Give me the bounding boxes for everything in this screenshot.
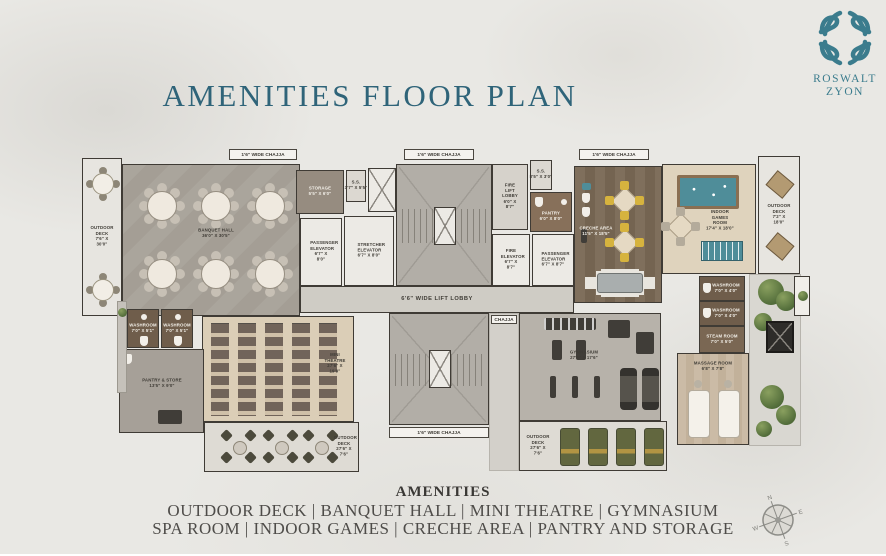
lounge-chair — [765, 232, 794, 261]
room-label: PASSENGER ELEVATOR6'7" X 8'0" — [310, 241, 332, 263]
corridor-label: 6'6" WIDE LIFT LOBBY — [401, 296, 473, 303]
room-label: BANQUET HALL36'0" X 30'5" — [198, 229, 234, 240]
store-unit — [158, 410, 182, 424]
room-label: WASHROOM7'0" X 4'0" — [713, 283, 741, 294]
theatre-seat-row — [211, 323, 229, 416]
room-washroom-left-2: WASHROOM7'0" X 5'1" — [161, 309, 193, 348]
room-label: STORAGE5'5" X 6'0" — [309, 187, 332, 198]
stair-core-elevator — [434, 207, 456, 245]
banquet-table — [147, 191, 177, 221]
room-steam: STEAM ROOM7'0" X 5'0" — [699, 326, 745, 353]
chajja-label-side: CHAJJA — [491, 315, 517, 324]
room-indoor-games: INDOOR GAMES ROOM17'4" X 18'0" — [662, 164, 756, 274]
deck-table — [92, 279, 114, 301]
chajja-label-top-right: 1'6" WIDE CHAJJA — [579, 149, 649, 160]
deck-chair — [286, 429, 299, 442]
stair-flight — [455, 209, 488, 243]
card-chair — [676, 237, 685, 246]
stair-flight — [395, 354, 429, 386]
room-label: OUTDOOR DECK27'6" X 7'6" — [334, 436, 354, 458]
kitchenette-unit — [582, 193, 590, 203]
sun-lounger — [588, 428, 608, 466]
kids-chair — [620, 223, 629, 232]
service-shaft — [766, 321, 794, 353]
brand-logo: ROSWALT ZYON — [812, 8, 878, 99]
deck-chair — [220, 429, 233, 442]
room-stretcher-elevator: STRETCHER ELEVATOR6'7" X 8'0" — [344, 216, 394, 286]
room-label: WASHROOM7'0" X 5'1" — [163, 323, 191, 334]
room-label: GYMNASIUM27'6" X 17'6" — [570, 351, 598, 362]
room-label: S.S.8'5" X 3'0" — [530, 170, 553, 181]
toilet — [174, 336, 182, 346]
dumbbell — [594, 376, 600, 398]
dining-table — [597, 273, 643, 293]
deck-table — [233, 441, 247, 455]
room-label: STEAM ROOM7'0" X 5'0" — [706, 334, 737, 345]
chajja-label-bottom: 1'6" WIDE CHAJJA — [389, 427, 489, 438]
room-outdoor-deck-right: OUTDOOR DECK7'2" X 18'0" — [758, 156, 800, 274]
room-label: PASSENGER ELEVATOR6'7" X 8'7" — [541, 252, 564, 268]
banquet-table — [201, 259, 231, 289]
room-washroom-right-1: WASHROOM7'0" X 4'0" — [699, 276, 745, 301]
deck-chair — [302, 429, 315, 442]
room-mini-theatre: MINI THEATRE27'6" X 19'9" — [202, 316, 354, 422]
room-washroom-right-2: WASHROOM7'0" X 4'0" — [699, 301, 745, 326]
room-storage: STORAGE5'5" X 6'0" — [296, 170, 344, 214]
room-outdoor-deck-gym: OUTDOOR DECK27'6" X 7'6" — [519, 421, 667, 471]
stair-core-elevator — [429, 350, 451, 388]
staircase-bottom — [389, 313, 489, 425]
deck-chair — [302, 451, 315, 464]
massage-pillow — [694, 380, 702, 388]
kids-chair — [635, 196, 644, 205]
sink — [141, 314, 147, 320]
room-gymnasium: GYMNASIUM27'6" X 17'6" — [519, 313, 661, 421]
left-edge-strip — [117, 301, 127, 393]
plant — [776, 291, 796, 311]
plant — [118, 308, 127, 317]
kids-chair — [620, 181, 629, 190]
compass-w: W — [752, 525, 760, 533]
room-fire-lift-lobby: FIRE LIFT LOBBY6'0" X 8'7" — [492, 164, 528, 230]
banquet-table — [147, 259, 177, 289]
room-ss-right: S.S.8'5" X 3'0" — [530, 160, 552, 190]
lift-lobby-corridor: 6'6" WIDE LIFT LOBBY — [300, 286, 574, 313]
room-label: WASHROOM7'0" X 5'1" — [129, 323, 157, 334]
treadmill — [642, 368, 659, 410]
compass-n: N — [767, 495, 773, 502]
chajja-label-top-left: 1'6" WIDE CHAJJA — [229, 149, 297, 160]
room-pantry: PANTRY6'0" X 8'0" — [530, 192, 572, 232]
lounge-chair — [765, 170, 794, 199]
massage-pillow — [724, 380, 732, 388]
room-label: PANTRY & STORE13'5" X 9'0" — [142, 379, 182, 390]
dumbbell — [572, 376, 578, 398]
chajja-label-top-center: 1'6" WIDE CHAJJA — [404, 149, 474, 160]
theatre-seat-row — [265, 323, 283, 416]
kids-chair — [620, 253, 629, 262]
room-label: FIRE ELEVATOR6'7" X 8'7" — [501, 249, 521, 271]
massage-bed — [718, 390, 740, 438]
staircase-top — [396, 164, 492, 286]
kids-chair — [605, 196, 614, 205]
treadmill — [620, 368, 637, 410]
compass-s: S — [784, 541, 790, 548]
room-label: S.S.3'7" X 5'5" — [345, 181, 368, 192]
foosball-table — [701, 241, 743, 261]
dumbbell — [550, 376, 556, 398]
sink — [175, 314, 181, 320]
billiards-table — [677, 175, 739, 209]
room-banquet-hall: BANQUET HALL36'0" X 30'5" — [122, 164, 300, 316]
kitchenette-counter — [582, 183, 591, 190]
toilet — [703, 308, 711, 318]
gym-machine — [636, 332, 654, 354]
plant — [798, 291, 808, 301]
sun-lounger — [644, 428, 664, 466]
toilet — [140, 336, 148, 346]
brochure-page: AMENITIES FLOOR PLAN ROSWALT ZYON 1'6" W… — [0, 0, 886, 554]
sun-lounger — [616, 428, 636, 466]
deck-table — [92, 173, 114, 195]
page-title: AMENITIES FLOOR PLAN — [0, 78, 740, 114]
room-passenger-elevator-left: PASSENGER ELEVATOR6'7" X 8'0" — [300, 218, 342, 286]
pantry-sink — [561, 199, 567, 205]
deck-chair — [262, 451, 275, 464]
room-label: INDOOR GAMES ROOM17'4" X 18'0" — [704, 210, 736, 232]
room-label: STRETCHER ELEVATOR6'7" X 8'0" — [357, 243, 380, 259]
planter-box-right-edge — [794, 276, 810, 316]
logo-tile-grid-icon — [815, 8, 875, 68]
deck-chair — [262, 429, 275, 442]
room-label: OUTDOOR DECK7'6" X 30'0" — [90, 226, 114, 248]
plant — [776, 405, 796, 425]
banquet-table — [255, 259, 285, 289]
pantry-fixture — [535, 197, 543, 207]
card-chair — [691, 222, 700, 231]
deck-chair — [220, 451, 233, 464]
brand-name-line1: ROSWALT — [812, 73, 878, 86]
deck-chair — [244, 451, 257, 464]
gym-machine — [608, 320, 630, 338]
massage-bed — [688, 390, 710, 438]
banquet-table — [255, 191, 285, 221]
elevator-shaft — [368, 168, 396, 212]
kitchenette-unit — [582, 207, 590, 217]
sun-lounger — [560, 428, 580, 466]
plant — [756, 421, 772, 437]
room-passenger-elevator-right: PASSENGER ELEVATOR6'7" X 8'7" — [532, 234, 574, 286]
room-ss-left: S.S.3'7" X 5'5" — [346, 170, 366, 202]
banquet-table — [201, 191, 231, 221]
room-outdoor-deck-theatre: OUTDOOR DECK27'6" X 7'6" — [204, 422, 359, 472]
room-label: PANTRY6'0" X 8'0" — [540, 211, 563, 222]
deck-chair — [286, 451, 299, 464]
kids-chair — [635, 238, 644, 247]
room-label: WASHROOM7'0" X 4'0" — [713, 308, 741, 319]
room-outdoor-deck-left: OUTDOOR DECK7'6" X 30'0" — [82, 158, 122, 316]
room-label: OUTDOOR DECK7'2" X 18'0" — [767, 204, 791, 226]
kids-chair — [605, 238, 614, 247]
room-creche-area: CRECHE AREA11'5" X 18'5" — [574, 166, 662, 303]
stair-flight — [451, 354, 485, 386]
deck-table — [275, 441, 289, 455]
dumbbell-rack — [544, 318, 596, 330]
room-fire-elevator: FIRE ELEVATOR6'7" X 8'7" — [492, 234, 530, 286]
cable-machine — [552, 340, 562, 360]
room-label: MINI THEATRE27'6" X 19'9" — [324, 353, 346, 375]
deck-table — [315, 441, 329, 455]
theatre-seat-row — [238, 323, 256, 416]
card-chair — [676, 207, 685, 216]
corridor-gym-west — [489, 313, 519, 471]
kids-chair — [620, 211, 629, 220]
room-pantry-store: PANTRY & STORE13'5" X 9'0" — [119, 349, 204, 433]
room-label: FIRE LIFT LOBBY6'0" X 8'7" — [500, 184, 520, 211]
brand-name-line2: ZYON — [812, 86, 878, 99]
floor-plan: 1'6" WIDE CHAJJA 1'6" WIDE CHAJJA 1'6" W… — [74, 146, 814, 480]
compass-e: E — [798, 509, 804, 516]
room-washroom-left-1: WASHROOM7'0" X 5'1" — [127, 309, 159, 348]
room-label: MASSAGE ROOM6'8" X 7'8" — [694, 361, 732, 372]
room-label: OUTDOOR DECK27'6" X 7'6" — [525, 435, 549, 457]
deck-chair — [244, 429, 257, 442]
room-massage: MASSAGE ROOM6'8" X 7'8" — [677, 353, 749, 445]
room-label: CRECHE AREA11'5" X 18'5" — [579, 226, 612, 237]
stair-flight — [402, 209, 435, 243]
card-chair — [661, 222, 670, 231]
theatre-seat-row — [292, 323, 310, 416]
toilet — [703, 283, 711, 293]
